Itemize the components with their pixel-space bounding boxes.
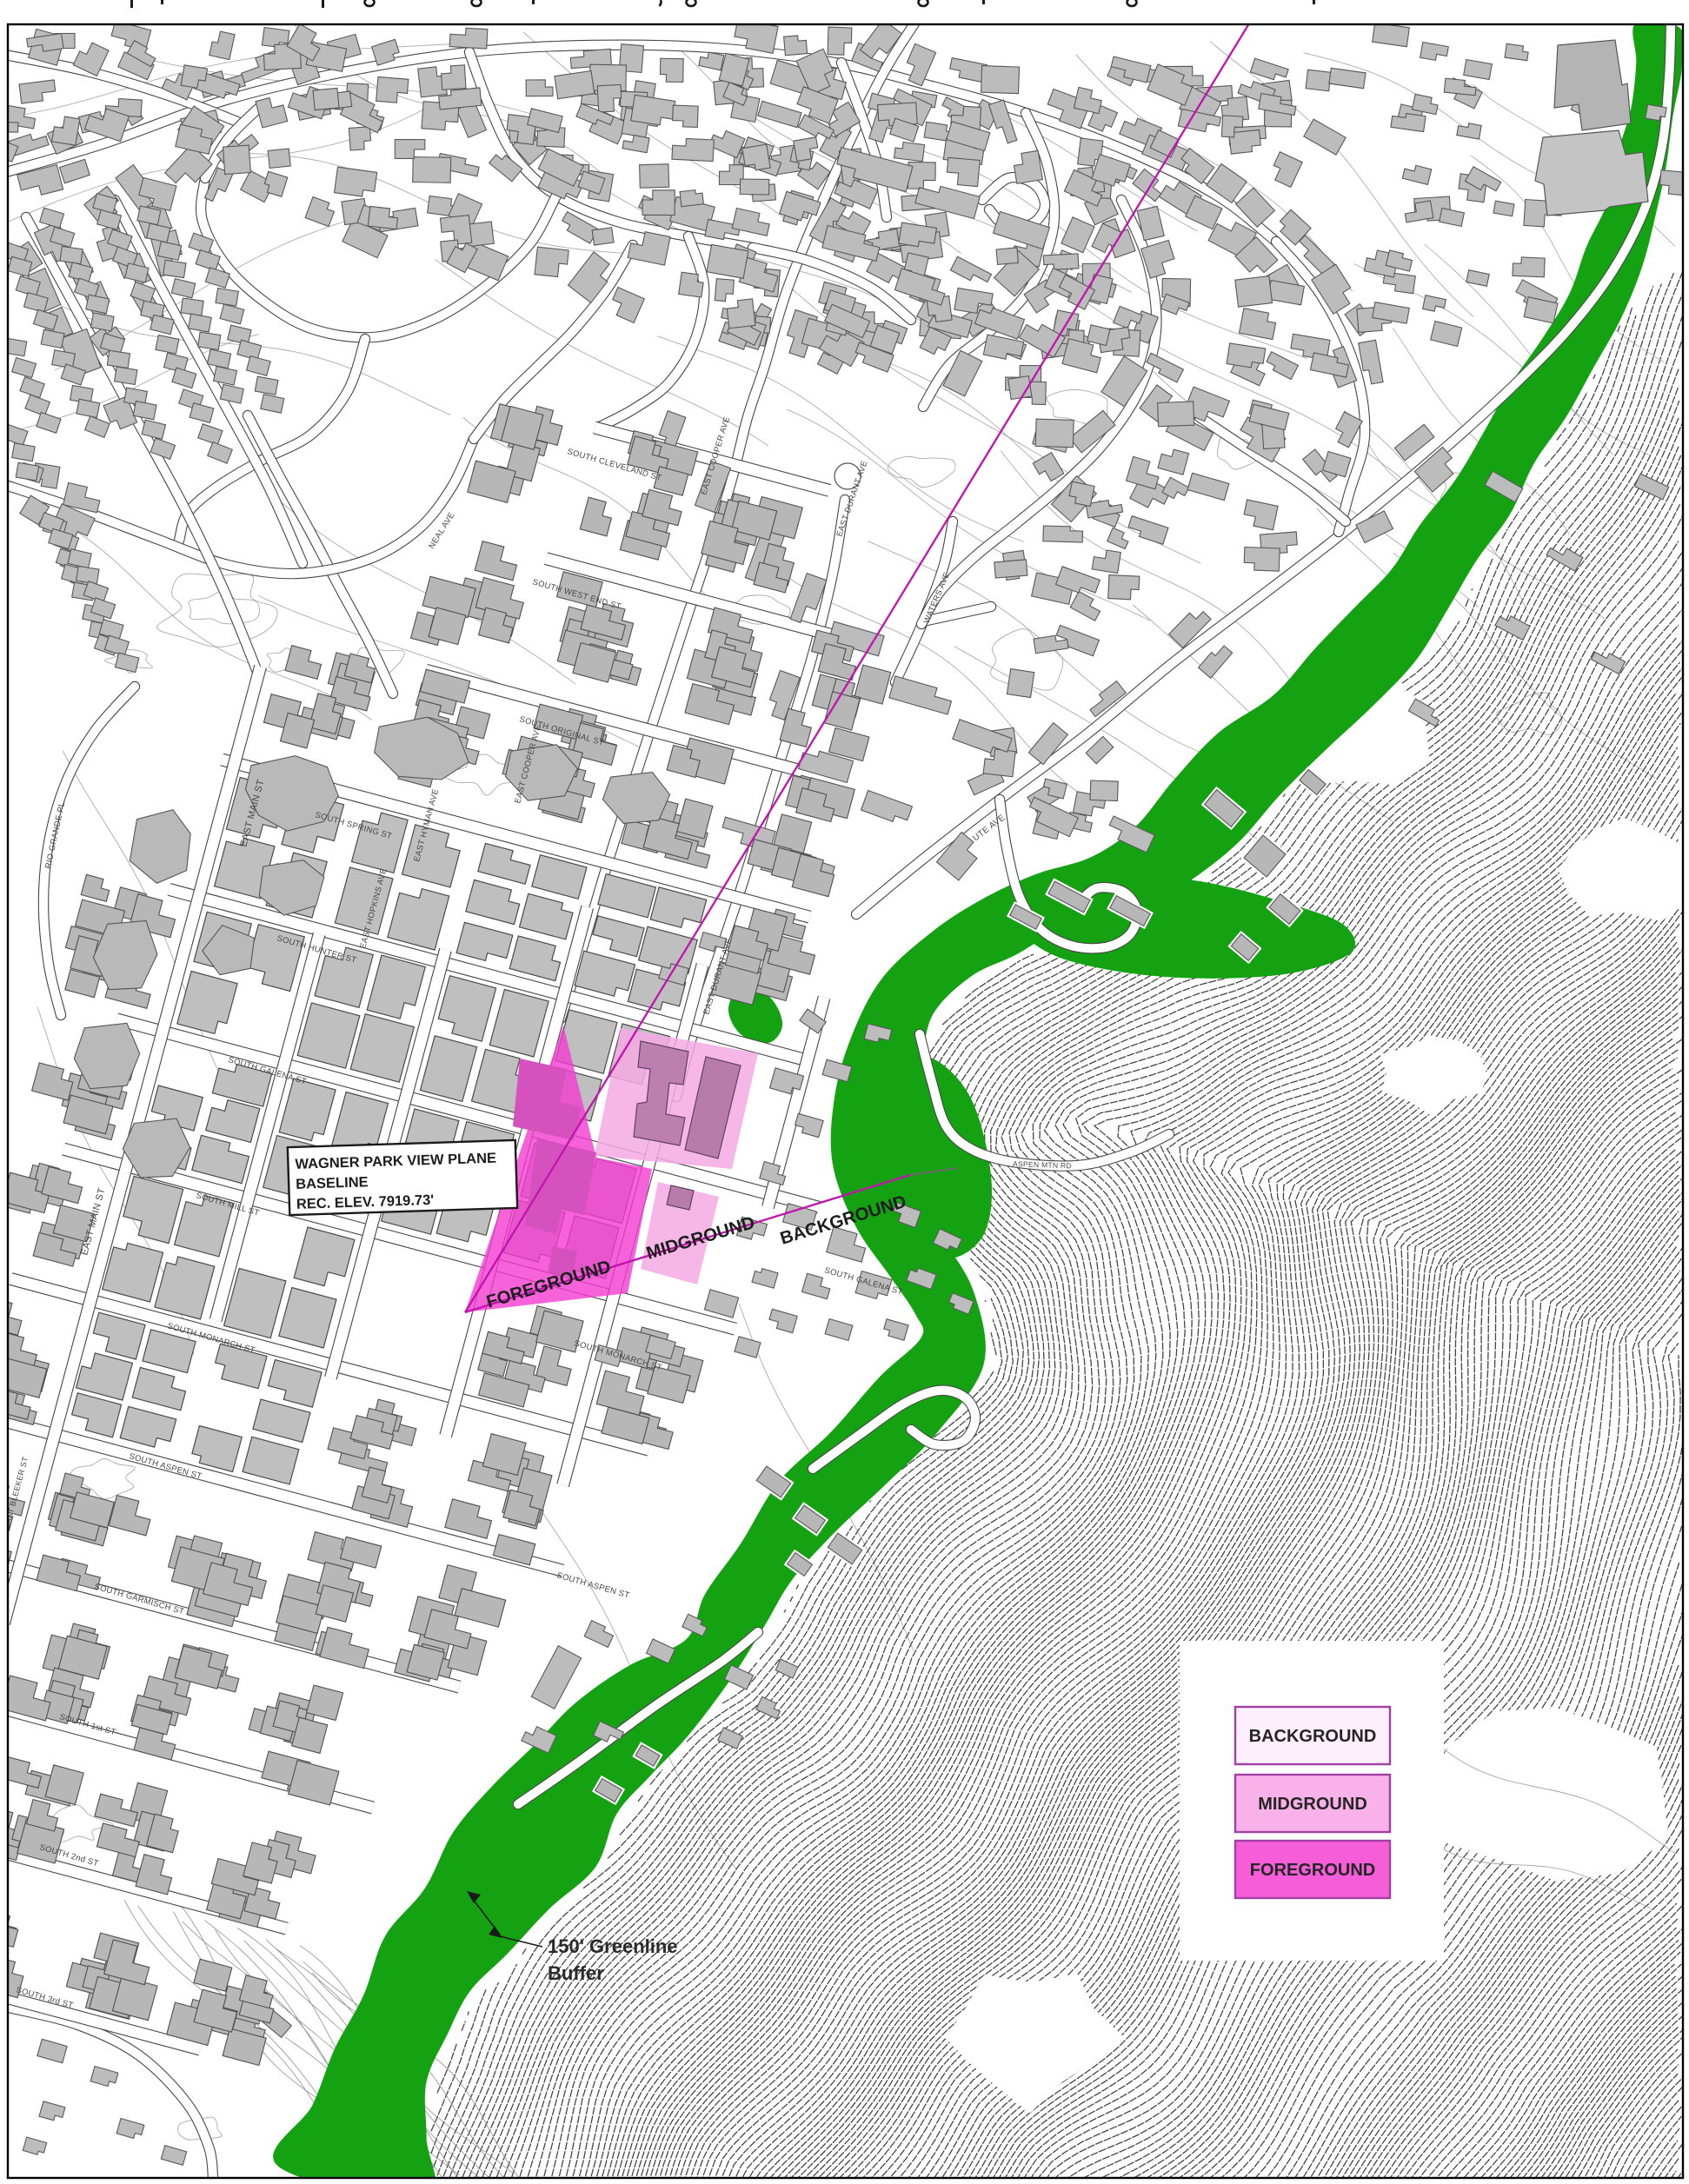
svg-text:BACKGROUND: BACKGROUND xyxy=(1249,1727,1377,1746)
svg-text:Buffer: Buffer xyxy=(548,1962,604,1984)
svg-text:BASELINE: BASELINE xyxy=(296,1174,369,1192)
svg-text:FOREGROUND: FOREGROUND xyxy=(1250,1861,1375,1880)
svg-text:150' Greenline: 150' Greenline xyxy=(548,1935,678,1957)
svg-text:MIDGROUND: MIDGROUND xyxy=(1258,1795,1367,1814)
